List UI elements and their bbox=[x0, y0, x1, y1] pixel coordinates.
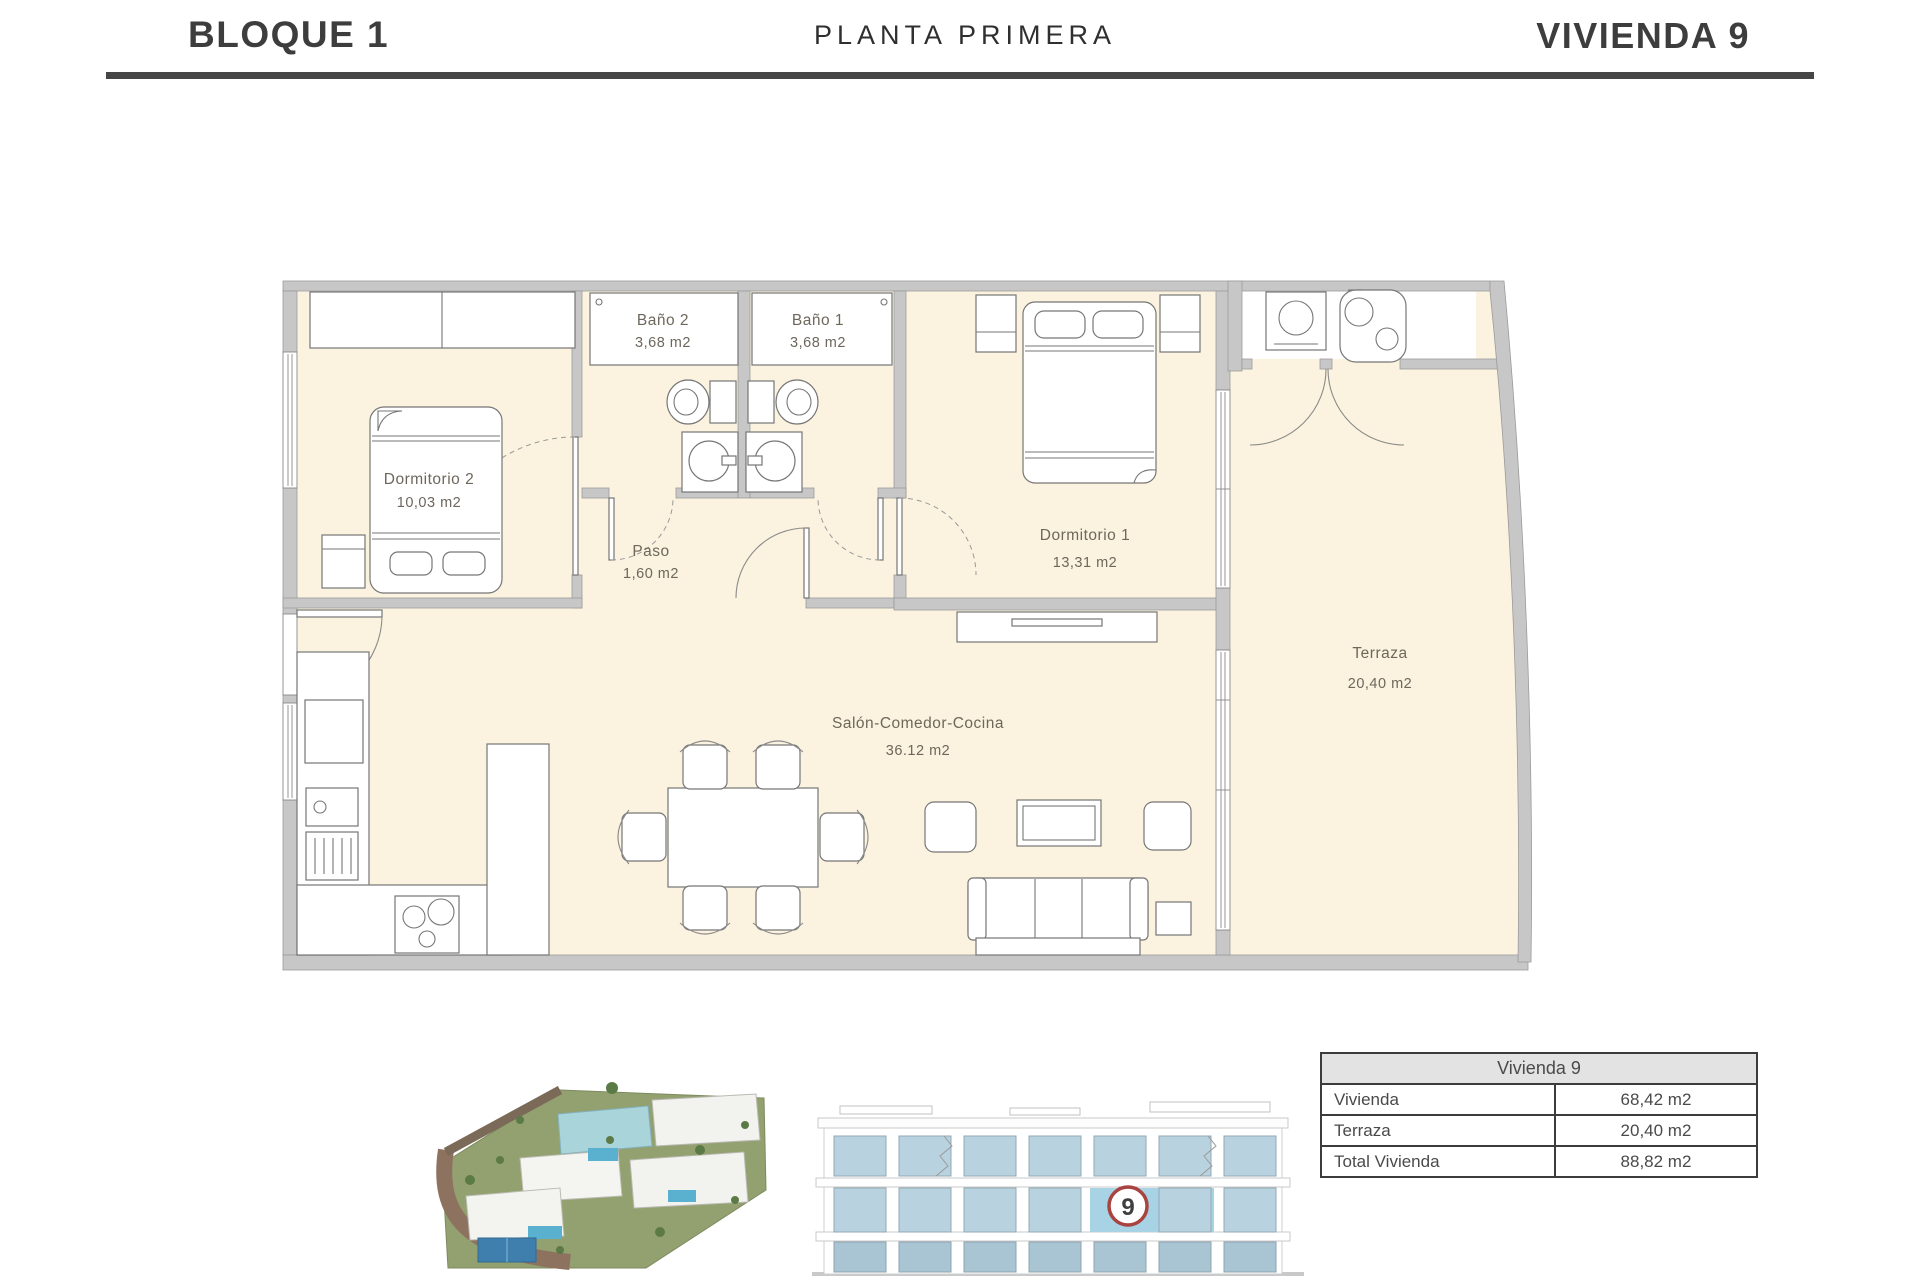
render-pool bbox=[528, 1226, 562, 1239]
table-row: Terraza 20,40 m2 bbox=[1321, 1115, 1757, 1146]
dining-chair bbox=[753, 741, 803, 789]
aerial-render bbox=[442, 1082, 766, 1268]
tv-unit bbox=[957, 612, 1157, 642]
coffee-table bbox=[1017, 800, 1101, 846]
render-pool bbox=[588, 1148, 618, 1161]
windows-floor-2 bbox=[834, 1136, 1276, 1176]
window-dormitorio-1 bbox=[1216, 390, 1230, 588]
unit-badge: 9 bbox=[1109, 1187, 1147, 1225]
unit-badge-number: 9 bbox=[1121, 1194, 1134, 1221]
svg-text:13,31 m2: 13,31 m2 bbox=[1053, 555, 1117, 571]
row-value: 88,82 m2 bbox=[1555, 1146, 1757, 1177]
shower-tray bbox=[752, 293, 892, 365]
bed-dormitorio-1 bbox=[1023, 302, 1156, 483]
table-row: Vivienda 68,42 m2 bbox=[1321, 1084, 1757, 1115]
render-pool bbox=[668, 1190, 696, 1202]
dining-chair bbox=[618, 810, 666, 864]
summary-table: Vivienda 9 Vivienda 68,42 m2 Terraza 20,… bbox=[1320, 1052, 1758, 1178]
side-table-right bbox=[1144, 802, 1191, 850]
svg-text:36.12 m2: 36.12 m2 bbox=[886, 743, 950, 759]
fridge bbox=[305, 700, 363, 763]
svg-text:3,68 m2: 3,68 m2 bbox=[790, 335, 846, 351]
roof-pergola bbox=[1010, 1108, 1080, 1115]
table-row: Total Vivienda 88,82 m2 bbox=[1321, 1146, 1757, 1177]
roof-pergola bbox=[1150, 1102, 1270, 1112]
row-label: Total Vivienda bbox=[1321, 1146, 1555, 1177]
washing-machine bbox=[1266, 292, 1326, 350]
svg-text:Baño 2: Baño 2 bbox=[637, 312, 689, 329]
floor-slab bbox=[816, 1178, 1290, 1187]
building-elevation: 9 bbox=[812, 1102, 1304, 1276]
side-table-left bbox=[925, 802, 976, 852]
svg-text:Baño 1: Baño 1 bbox=[792, 312, 844, 329]
cooktop bbox=[395, 896, 459, 953]
summary-table-title: Vivienda 9 bbox=[1321, 1053, 1757, 1084]
kitchen-island bbox=[487, 744, 549, 955]
dining-chair bbox=[753, 886, 803, 934]
sofa bbox=[968, 878, 1148, 955]
svg-text:3,68 m2: 3,68 m2 bbox=[635, 335, 691, 351]
svg-text:Dormitorio 2: Dormitorio 2 bbox=[384, 471, 474, 488]
svg-text:Paso: Paso bbox=[632, 543, 669, 560]
dining-table bbox=[668, 788, 818, 887]
svg-text:1,60 m2: 1,60 m2 bbox=[623, 566, 679, 582]
toilet bbox=[748, 380, 818, 424]
washbasin bbox=[746, 432, 802, 492]
dishwasher bbox=[306, 832, 358, 880]
svg-text:Dormitorio 1: Dormitorio 1 bbox=[1040, 527, 1130, 544]
apartment-floor bbox=[297, 291, 1520, 955]
dining-chair bbox=[680, 886, 730, 934]
row-label: Vivienda bbox=[1321, 1084, 1555, 1115]
laundry-sink bbox=[1340, 290, 1406, 362]
washbasin bbox=[682, 432, 738, 492]
dresser bbox=[322, 535, 365, 588]
svg-text:20,40 m2: 20,40 m2 bbox=[1348, 676, 1412, 692]
floor-plan: Dormitorio 2 10,03 m2 Baño 2 3,68 m2 Bañ… bbox=[283, 281, 1532, 970]
dining-chair bbox=[820, 810, 868, 864]
windows-ground bbox=[834, 1242, 1276, 1272]
plan-sheet: { "header": { "block": "BLOQUE 1", "floo… bbox=[0, 0, 1920, 1280]
render-paddle-court bbox=[478, 1238, 536, 1262]
sofa-side-table bbox=[1156, 902, 1191, 935]
svg-text:10,03 m2: 10,03 m2 bbox=[397, 495, 461, 511]
roof-slab bbox=[818, 1118, 1288, 1128]
shower-tray bbox=[590, 293, 738, 365]
kitchen-sink bbox=[306, 788, 358, 826]
roof-pergola bbox=[840, 1106, 932, 1114]
sliding-door-terrace bbox=[1216, 650, 1230, 930]
toilet bbox=[667, 380, 736, 424]
floor-slab bbox=[816, 1232, 1290, 1241]
window-dormitorio-2 bbox=[283, 352, 297, 488]
windows-floor-1 bbox=[834, 1188, 1276, 1232]
render-building bbox=[652, 1094, 760, 1146]
nightstand-left bbox=[976, 295, 1016, 352]
row-value: 68,42 m2 bbox=[1555, 1084, 1757, 1115]
row-label: Terraza bbox=[1321, 1115, 1555, 1146]
nightstand-right bbox=[1160, 295, 1200, 352]
svg-text:Terraza: Terraza bbox=[1352, 645, 1407, 662]
window-kitchen bbox=[283, 703, 297, 800]
row-value: 20,40 m2 bbox=[1555, 1115, 1757, 1146]
render-building-blue bbox=[558, 1106, 652, 1154]
dining-chair bbox=[680, 741, 730, 789]
svg-text:Salón-Comedor-Cocina: Salón-Comedor-Cocina bbox=[832, 715, 1004, 732]
